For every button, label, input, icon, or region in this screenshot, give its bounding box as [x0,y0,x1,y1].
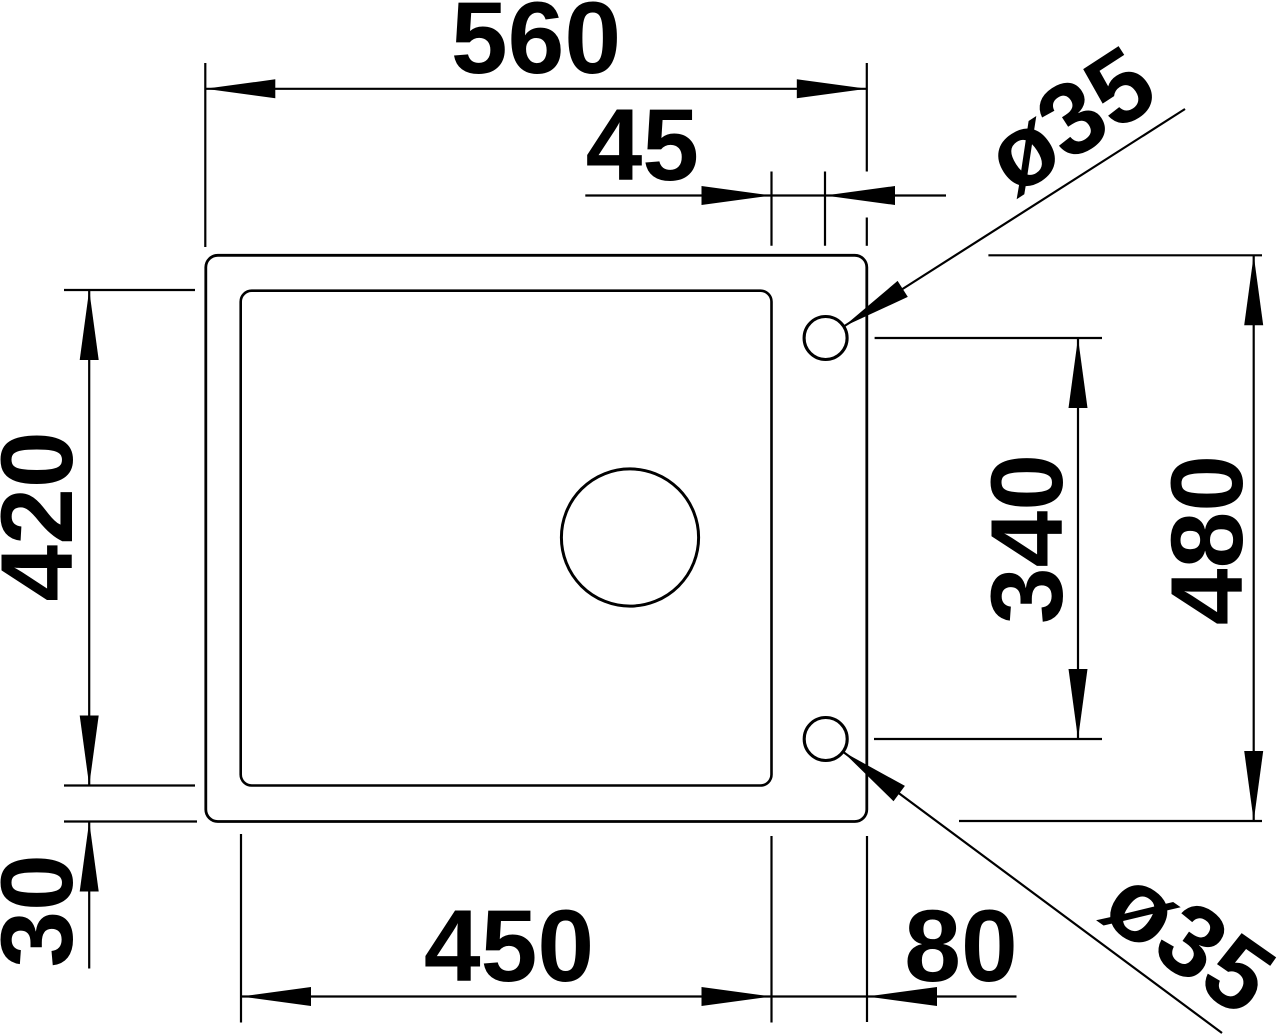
svg-text:480: 480 [1150,455,1264,625]
svg-text:450: 450 [424,889,594,1003]
svg-text:340: 340 [970,454,1084,624]
svg-text:30: 30 [0,854,94,967]
svg-text:420: 420 [0,431,94,601]
svg-text:560: 560 [451,0,621,95]
svg-text:80: 80 [904,889,1017,1003]
svg-text:45: 45 [586,88,699,202]
